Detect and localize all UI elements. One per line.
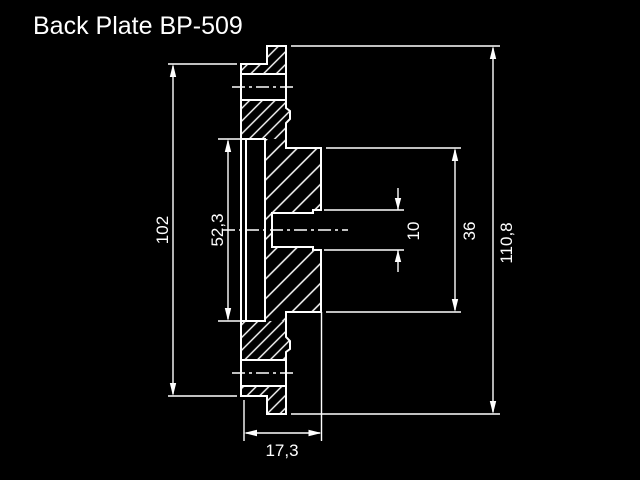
dim-label-102: 102 [153, 216, 172, 244]
hatch-lower-flange [241, 321, 290, 360]
hatch-upper-flange [241, 100, 290, 139]
arrow-102-up [170, 64, 176, 77]
drawing-canvas: Back Plate BP-509 [0, 0, 640, 480]
dim-label-110-8: 110,8 [497, 222, 516, 263]
back-plate-technical-drawing: Back Plate BP-509 [0, 0, 640, 480]
arrow-36-up [452, 148, 458, 161]
arrow-10-top [395, 198, 401, 210]
dim-label-52-3: 52,3 [208, 213, 227, 246]
dim-label-10: 10 [404, 222, 423, 241]
dim-label-36: 36 [460, 222, 479, 241]
hatch-top-rim [267, 46, 286, 64]
arrow-52-up [225, 139, 231, 152]
arrow-110-up [490, 46, 496, 59]
arrow-102-down [170, 383, 176, 396]
arrow-10-bottom [395, 250, 401, 262]
arrow-17-right [309, 430, 322, 436]
dim-label-17-3: 17,3 [265, 441, 298, 460]
page-title: Back Plate BP-509 [33, 12, 243, 40]
hatch-bottom-rim [267, 396, 286, 414]
arrow-110-down [490, 401, 496, 414]
arrow-36-down [452, 299, 458, 312]
hatch-top-band [241, 64, 286, 74]
arrow-52-down [225, 308, 231, 321]
arrow-17-left [244, 430, 257, 436]
hatch-bottom-band [241, 386, 286, 396]
